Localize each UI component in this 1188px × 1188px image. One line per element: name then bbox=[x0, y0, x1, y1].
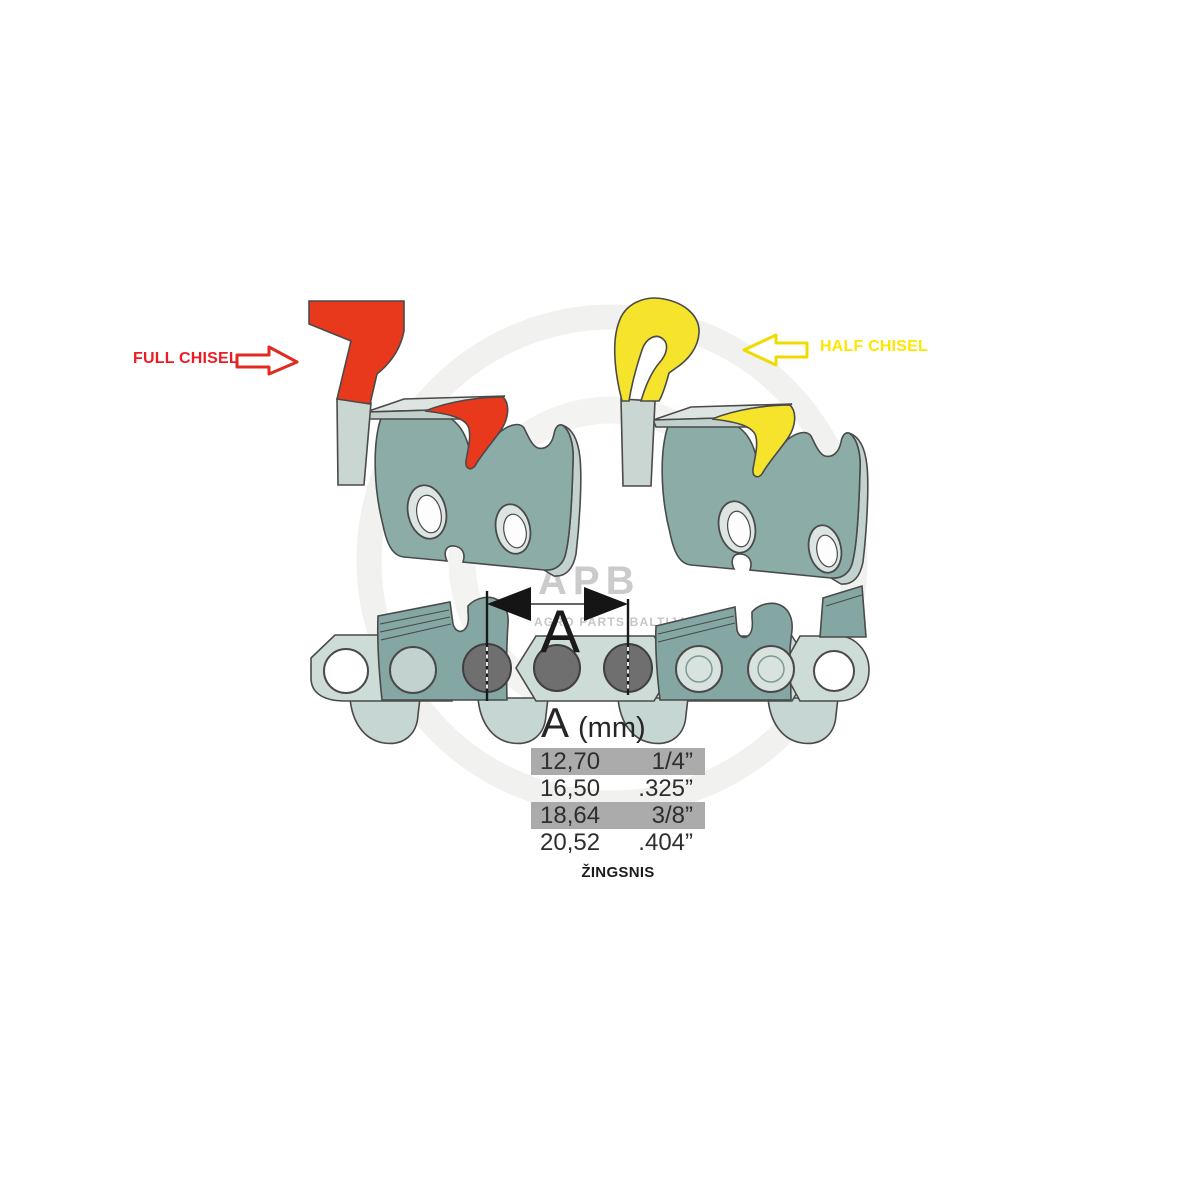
chain-art bbox=[0, 0, 1188, 1188]
pitch-mm-value: 16,50 bbox=[540, 775, 600, 802]
dimension-letter-label: A bbox=[531, 602, 589, 662]
full-chisel-arrow-icon bbox=[237, 347, 297, 374]
pitch-mm-value: 18,64 bbox=[540, 802, 600, 829]
chain-hole-filled bbox=[390, 647, 436, 693]
chain-ring-hole-2 bbox=[748, 646, 794, 692]
half-chisel-cutter-link bbox=[653, 404, 868, 584]
dimension-arrowhead-right bbox=[584, 587, 628, 621]
half-chisel-arrow-icon bbox=[744, 335, 807, 365]
pitch-table-row: 12,70 1/4” bbox=[531, 748, 705, 775]
chain-hole-open-right bbox=[814, 651, 854, 691]
pitch-table-header-unit: (mm) bbox=[578, 714, 646, 743]
pitch-inch-value: 3/8” bbox=[652, 802, 693, 829]
chisel-stem bbox=[337, 399, 371, 485]
pitch-table: 12,70 1/4” 16,50 .325” 18,64 3/8” 20,52 … bbox=[531, 748, 705, 856]
half-chisel-profile-shape bbox=[615, 298, 699, 401]
chain-ring-hole-1 bbox=[676, 646, 722, 692]
half-chisel-label: HALF CHISEL bbox=[820, 338, 930, 356]
chainsaw-chain-diagram: APB AGRO PARTS BALTIJA bbox=[0, 0, 1188, 1188]
pitch-table-header-letter: A bbox=[541, 702, 569, 744]
pitch-caption: ŽINGSNIS bbox=[531, 864, 705, 881]
chain-partial-cutter bbox=[820, 586, 866, 637]
pitch-mm-value: 12,70 bbox=[540, 748, 600, 775]
full-chisel-label: FULL CHISEL bbox=[133, 350, 243, 368]
pitch-table-row: 16,50 .325” bbox=[531, 775, 705, 802]
pitch-inch-value: .404” bbox=[638, 829, 693, 856]
pitch-table-row: 18,64 3/8” bbox=[531, 802, 705, 829]
pitch-inch-value: .325” bbox=[638, 775, 693, 802]
chisel-stem bbox=[621, 399, 655, 486]
full-chisel-cutter-link bbox=[366, 396, 581, 576]
pitch-inch-value: 1/4” bbox=[652, 748, 693, 775]
pitch-table-row: 20,52 .404” bbox=[531, 829, 705, 856]
pitch-mm-value: 20,52 bbox=[540, 829, 600, 856]
pitch-table-header: A (mm) bbox=[541, 702, 646, 744]
chain-hole-open bbox=[324, 649, 368, 693]
full-chisel-profile-shape bbox=[309, 301, 404, 404]
